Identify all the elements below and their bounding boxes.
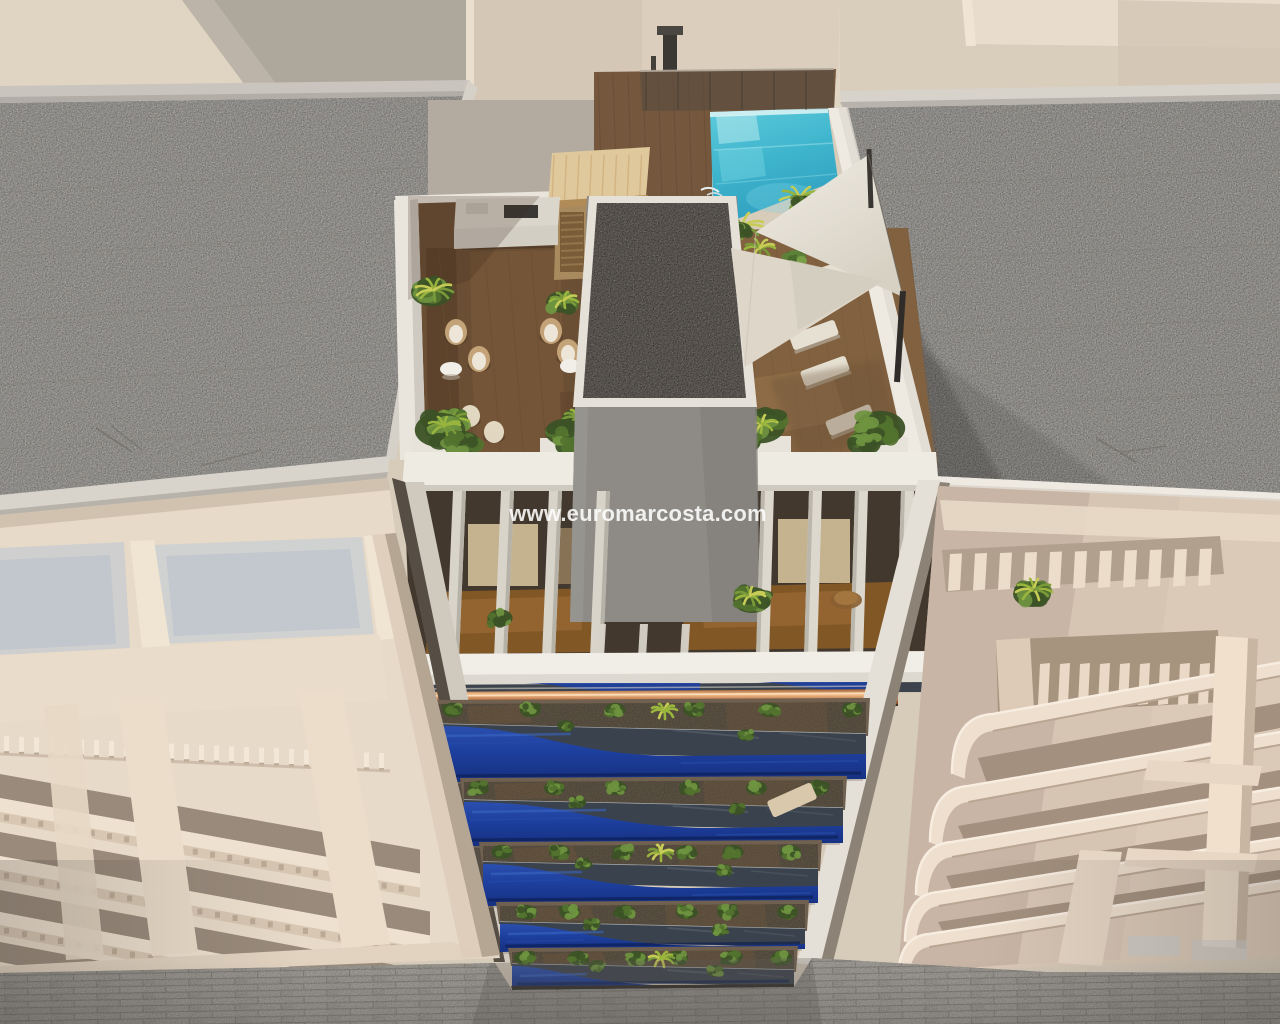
svg-text:www.euromarcosta.com: www.euromarcosta.com [508,501,766,526]
